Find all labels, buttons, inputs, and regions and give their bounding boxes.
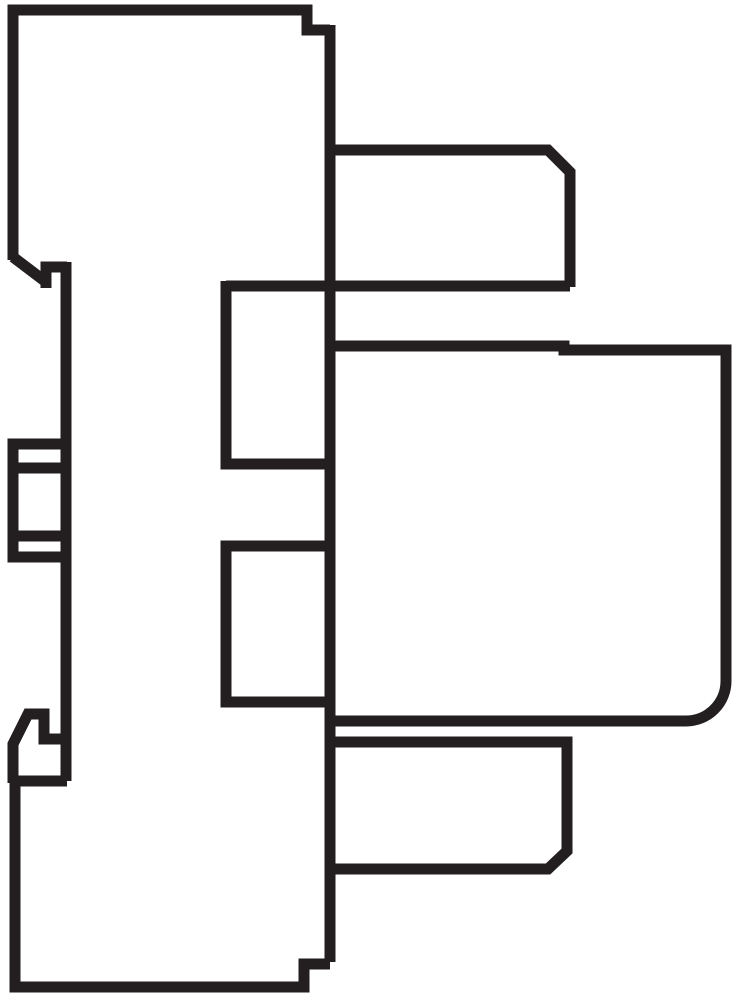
socket-bottom-outline bbox=[15, 781, 330, 987]
relay-body-outline bbox=[330, 346, 726, 721]
socket-top-outline bbox=[13, 10, 330, 260]
din-rail-clip-outline bbox=[13, 714, 67, 783]
drawing-canvas bbox=[0, 0, 737, 1000]
upper-arm-outline bbox=[330, 150, 570, 287]
lower-window-outline bbox=[226, 546, 330, 702]
upper-window-outline bbox=[226, 281, 330, 464]
lower-arm-outline bbox=[330, 742, 567, 869]
relay-side-view-svg bbox=[0, 0, 737, 1000]
line-work-group bbox=[13, 10, 726, 987]
